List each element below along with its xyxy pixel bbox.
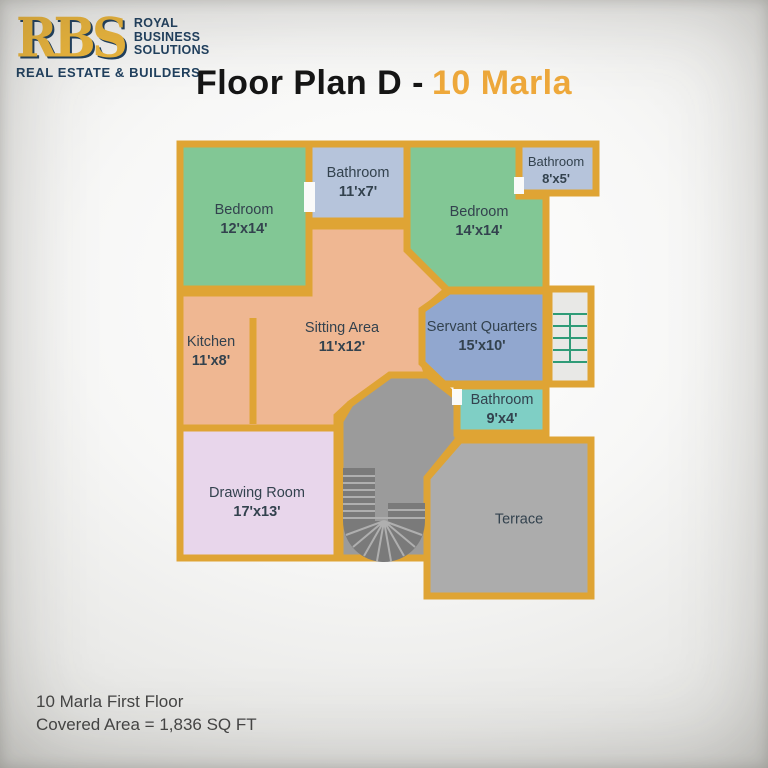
plan-footnote: 10 Marla First Floor Covered Area = 1,83… <box>36 690 257 736</box>
door-opening <box>304 182 315 212</box>
room-dims: 14'x14' <box>450 222 509 241</box>
room-name: Bathroom <box>528 153 584 170</box>
room-name: Bedroom <box>215 201 274 220</box>
room-name: Sitting Area <box>305 319 379 338</box>
room-name: Bedroom <box>450 203 509 222</box>
room-dims: 15'x10' <box>427 337 537 356</box>
door-opening <box>514 177 524 194</box>
room-name: Drawing Room <box>209 484 305 503</box>
room-label-servant-quarters: Servant Quarters 15'x10' <box>427 318 537 356</box>
room-label-bedroom-1: Bedroom 12'x14' <box>215 201 274 239</box>
room-label-bathroom-small: Bathroom 8'x5' <box>528 153 584 187</box>
room-dims: 12'x14' <box>215 220 274 239</box>
room-name: Bathroom <box>471 391 534 410</box>
room-dims: 17'x13' <box>209 503 305 522</box>
footnote-line-2: Covered Area = 1,836 SQ FT <box>36 713 257 736</box>
room-label-kitchen: Kitchen 11'x8' <box>187 333 235 371</box>
room-name: Terrace <box>495 511 543 530</box>
poster-canvas: RBS ROYAL BUSINESS SOLUTIONS REAL ESTATE… <box>0 0 768 768</box>
room-dims: 9'x4' <box>471 410 534 429</box>
footnote-line-1: 10 Marla First Floor <box>36 690 257 713</box>
room-label-terrace: Terrace <box>495 511 543 530</box>
room-label-sitting-area: Sitting Area 11'x12' <box>305 319 379 357</box>
room-name: Servant Quarters <box>427 318 537 337</box>
room-dims: 11'x12' <box>305 338 379 357</box>
room-label-drawing-room: Drawing Room 17'x13' <box>209 484 305 522</box>
room-dims: 8'x5' <box>528 170 584 187</box>
room-name: Kitchen <box>187 333 235 352</box>
floor-plan <box>0 0 768 768</box>
room-dims: 11'x8' <box>187 352 235 371</box>
room-dims: 11'x7' <box>327 183 390 202</box>
room-label-bedroom-2: Bedroom 14'x14' <box>450 203 509 241</box>
room-name: Bathroom <box>327 164 390 183</box>
room-label-bathroom-top: Bathroom 11'x7' <box>327 164 390 202</box>
door-opening <box>452 389 462 405</box>
room-label-bathroom-servant: Bathroom 9'x4' <box>471 391 534 429</box>
